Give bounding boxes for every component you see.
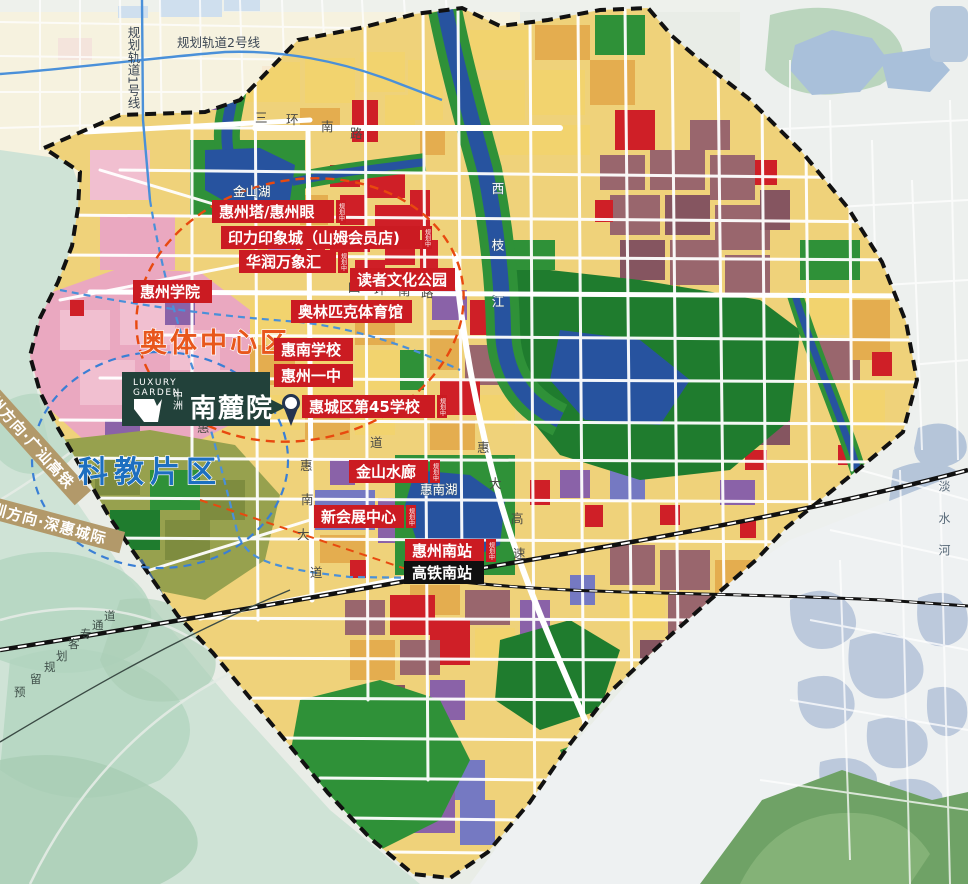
poi-huizhou-university: 惠州学院 xyxy=(133,280,212,303)
logo-project-name: 南麓院 xyxy=(190,393,274,424)
svg-text:惠州南站: 惠州南站 xyxy=(412,542,472,560)
logo-brand-line1: LUXURY xyxy=(133,378,177,388)
metro-line2-label: 规划轨道2号线 xyxy=(177,35,260,50)
svg-text:规划中: 规划中 xyxy=(338,202,345,222)
map-canvas: 三环南路 四环南路 惠南大道 惠大高速 道 惠 金山湖 惠南湖 西枝江 淡水河 … xyxy=(0,0,968,884)
svg-text:规划中: 规划中 xyxy=(432,462,439,482)
svg-text:读者文化公园: 读者文化公园 xyxy=(357,271,447,289)
station-label-gaotie-south: 高铁南站 xyxy=(404,561,484,584)
project-logo: LUXURY GARDEN 中洲 南麓院 xyxy=(122,372,286,426)
svg-text:金山水廊: 金山水廊 xyxy=(355,463,416,481)
svg-text:高铁南站: 高铁南站 xyxy=(412,564,472,582)
svg-text:惠南学校: 惠南学校 xyxy=(281,341,342,359)
poi-yinli-impression-city: 印力印象城（山姆会员店) 规划中 xyxy=(221,226,432,249)
svg-text:奥林匹克体育馆: 奥林匹克体育馆 xyxy=(298,303,403,321)
svg-text:华润万象汇: 华润万象汇 xyxy=(246,253,321,271)
poi-huizhou-no1-middle: 惠州一中 xyxy=(274,364,353,387)
svg-text:规划中: 规划中 xyxy=(439,397,446,417)
pin-circle xyxy=(284,396,299,411)
svg-text:规划中: 规划中 xyxy=(340,252,347,272)
logo-developer: 中洲 xyxy=(171,389,183,410)
poi-reader-culture-park: 读者文化公园 xyxy=(350,268,455,291)
svg-text:新会展中心: 新会展中心 xyxy=(321,508,396,526)
svg-text:规划中: 规划中 xyxy=(408,507,415,527)
poi-mixc: 华润万象汇 规划中 xyxy=(239,250,348,273)
planning-map: 三环南路 四环南路 惠南大道 惠大高速 道 惠 金山湖 惠南湖 西枝江 淡水河 … xyxy=(0,0,968,884)
svg-text:惠州学院: 惠州学院 xyxy=(140,283,200,301)
road-label-dao: 道 xyxy=(370,435,383,450)
poi-huizhou-tower: 惠州塔/惠州眼 规划中 xyxy=(212,200,346,223)
metro-line1-label: 规划轨道1号线 xyxy=(126,25,141,109)
water-label-jinshanhu: 金山湖 xyxy=(233,184,271,199)
district-label-aoti: 奥体中心区 xyxy=(140,327,290,359)
poi-new-convention-center: 新会展中心 规划中 xyxy=(314,505,416,528)
district-label-kejiao: 科教片区 xyxy=(78,455,222,490)
water-label-xizhijiang: 西枝江 xyxy=(490,182,505,352)
water-label-danshuihe: 淡水河 xyxy=(937,480,951,576)
svg-text:惠州一中: 惠州一中 xyxy=(281,367,341,385)
poi-huizhou-south-station: 惠州南站 规划中 xyxy=(405,539,496,562)
svg-text:规划中: 规划中 xyxy=(488,541,495,561)
svg-text:惠城区第45学校: 惠城区第45学校 xyxy=(309,398,421,416)
poi-huinan-school: 惠南学校 xyxy=(274,338,353,361)
svg-text:规划中: 规划中 xyxy=(424,228,431,248)
poi-olympic-stadium: 奥林匹克体育馆 xyxy=(291,300,412,323)
svg-text:印力印象城（山姆会员店): 印力印象城（山姆会员店) xyxy=(228,229,400,247)
water-label-huinanhu: 惠南湖 xyxy=(420,482,458,497)
poi-jinshan-water-corridor: 金山水廊 规划中 xyxy=(349,460,440,483)
poi-no45-school: 惠城区第45学校 规划中 xyxy=(302,395,447,418)
svg-text:惠州塔/惠州眼: 惠州塔/惠州眼 xyxy=(219,203,314,221)
